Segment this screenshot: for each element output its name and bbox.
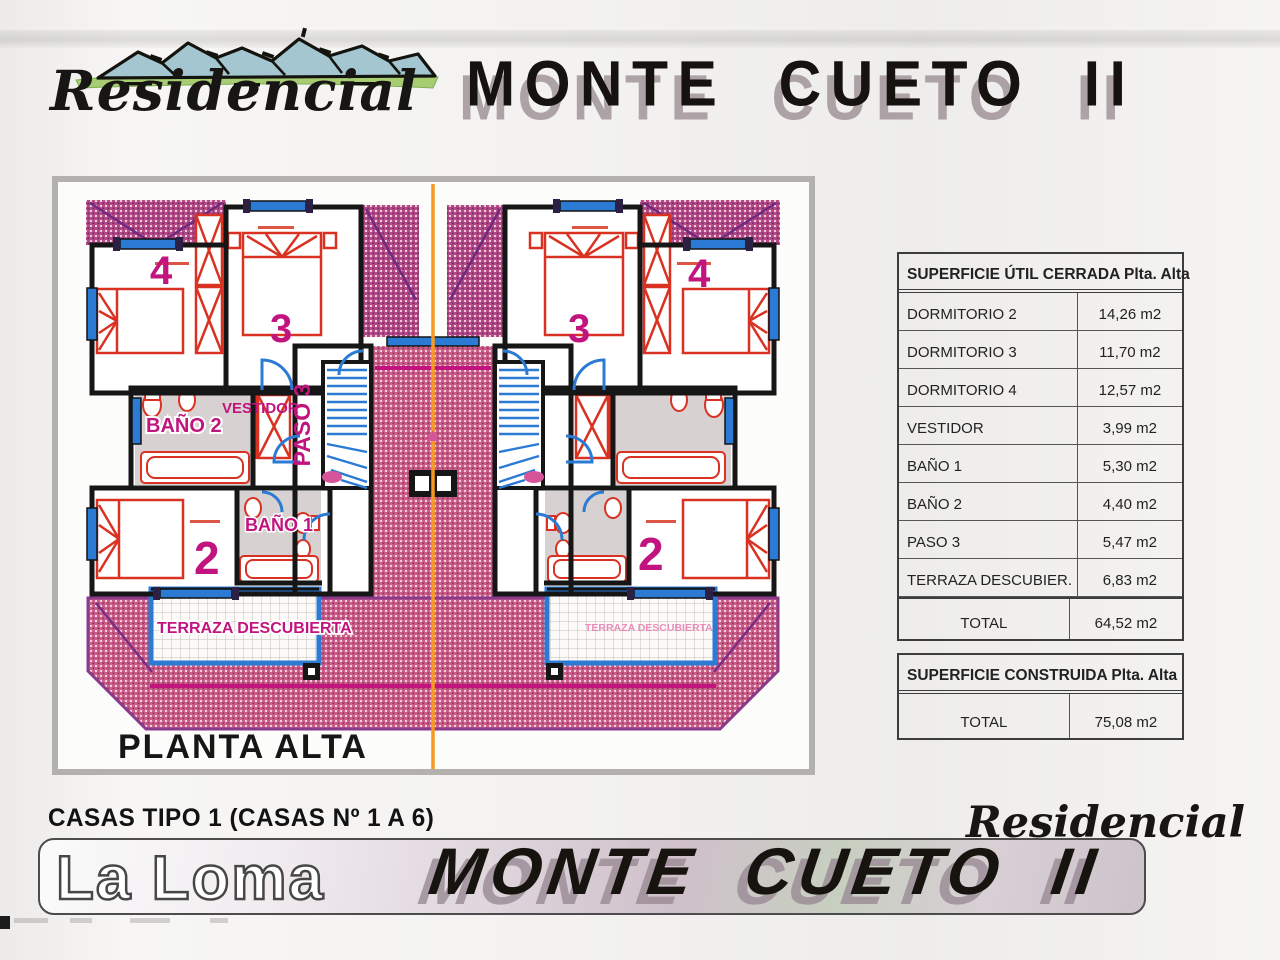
room-label-bano2: BAÑO 2 [146, 414, 222, 437]
scan-smudge [130, 918, 170, 923]
table-row: BAÑO 2 4,40 m2 [899, 483, 1182, 521]
room-label-dorm3-right: 3 [568, 307, 590, 351]
header-brand-script: Residencial [50, 58, 470, 123]
table-row: BAÑO 1 5,30 m2 [899, 445, 1182, 483]
house-type-line: CASAS TIPO 1 (CASAS Nº 1 A 6) [48, 804, 434, 833]
scan-smudge [14, 918, 48, 923]
terrace-label-left: TERRAZA DESCUBIERTA [157, 620, 352, 637]
room-label-vestidor: VESTIDOR [222, 400, 299, 417]
floor-plan: 4 3 2 4 3 2 BAÑO 2 VESTIDOR PASO 3 BAÑO … [48, 172, 822, 784]
room-label-dorm4-right: 4 [688, 252, 711, 296]
scan-smudge [70, 918, 92, 923]
table-row: PASO 3 5,47 m2 [899, 521, 1182, 559]
table-row: DORMITORIO 3 11,70 m2 [899, 331, 1182, 369]
room-label-dorm2-left: 2 [194, 532, 220, 584]
room-label-dorm3-left: 3 [270, 307, 292, 351]
table-util-title: SUPERFICIE ÚTIL CERRADA Plta. Alta [899, 254, 1182, 293]
table-construida-title: SUPERFICIE CONSTRUIDA Plta. Alta [899, 655, 1182, 694]
table-total-row: TOTAL 75,08 m2 [899, 694, 1182, 738]
table-row: TERRAZA DESCUBIER. 6,83 m2 [899, 559, 1182, 597]
table-total-row: TOTAL 64,52 m2 [899, 597, 1182, 639]
room-label-paso3: PASO 3 [289, 384, 315, 467]
footer-main-title: MONTE CUETO II [425, 833, 1107, 909]
plan-title: PLANTA ALTA [118, 728, 368, 766]
table-row: DORMITORIO 4 12,57 m2 [899, 369, 1182, 407]
header-main-title: MONTE CUETO II [466, 47, 1276, 120]
table-row: DORMITORIO 2 14,26 m2 [899, 293, 1182, 331]
room-label-dorm4-left: 4 [150, 249, 173, 293]
plan-house-right [433, 199, 780, 729]
room-label-dorm2-right: 2 [638, 528, 664, 580]
table-row: VESTIDOR 3,99 m2 [899, 407, 1182, 445]
plan-house-left [86, 199, 433, 729]
brochure-page: Residencial MONTE CUETO II [0, 0, 1280, 960]
terrace-label-right: TERRAZA DESCUBIERTA [585, 622, 713, 634]
table-superficie-util: SUPERFICIE ÚTIL CERRADA Plta. Alta DORMI… [897, 252, 1184, 641]
footer-location: La Loma [56, 843, 325, 914]
scan-smudge [210, 918, 228, 923]
room-label-bano1: BAÑO 1 [245, 514, 313, 535]
table-superficie-construida: SUPERFICIE CONSTRUIDA Plta. Alta TOTAL 7… [897, 653, 1184, 740]
scan-corner-mark [0, 916, 10, 929]
